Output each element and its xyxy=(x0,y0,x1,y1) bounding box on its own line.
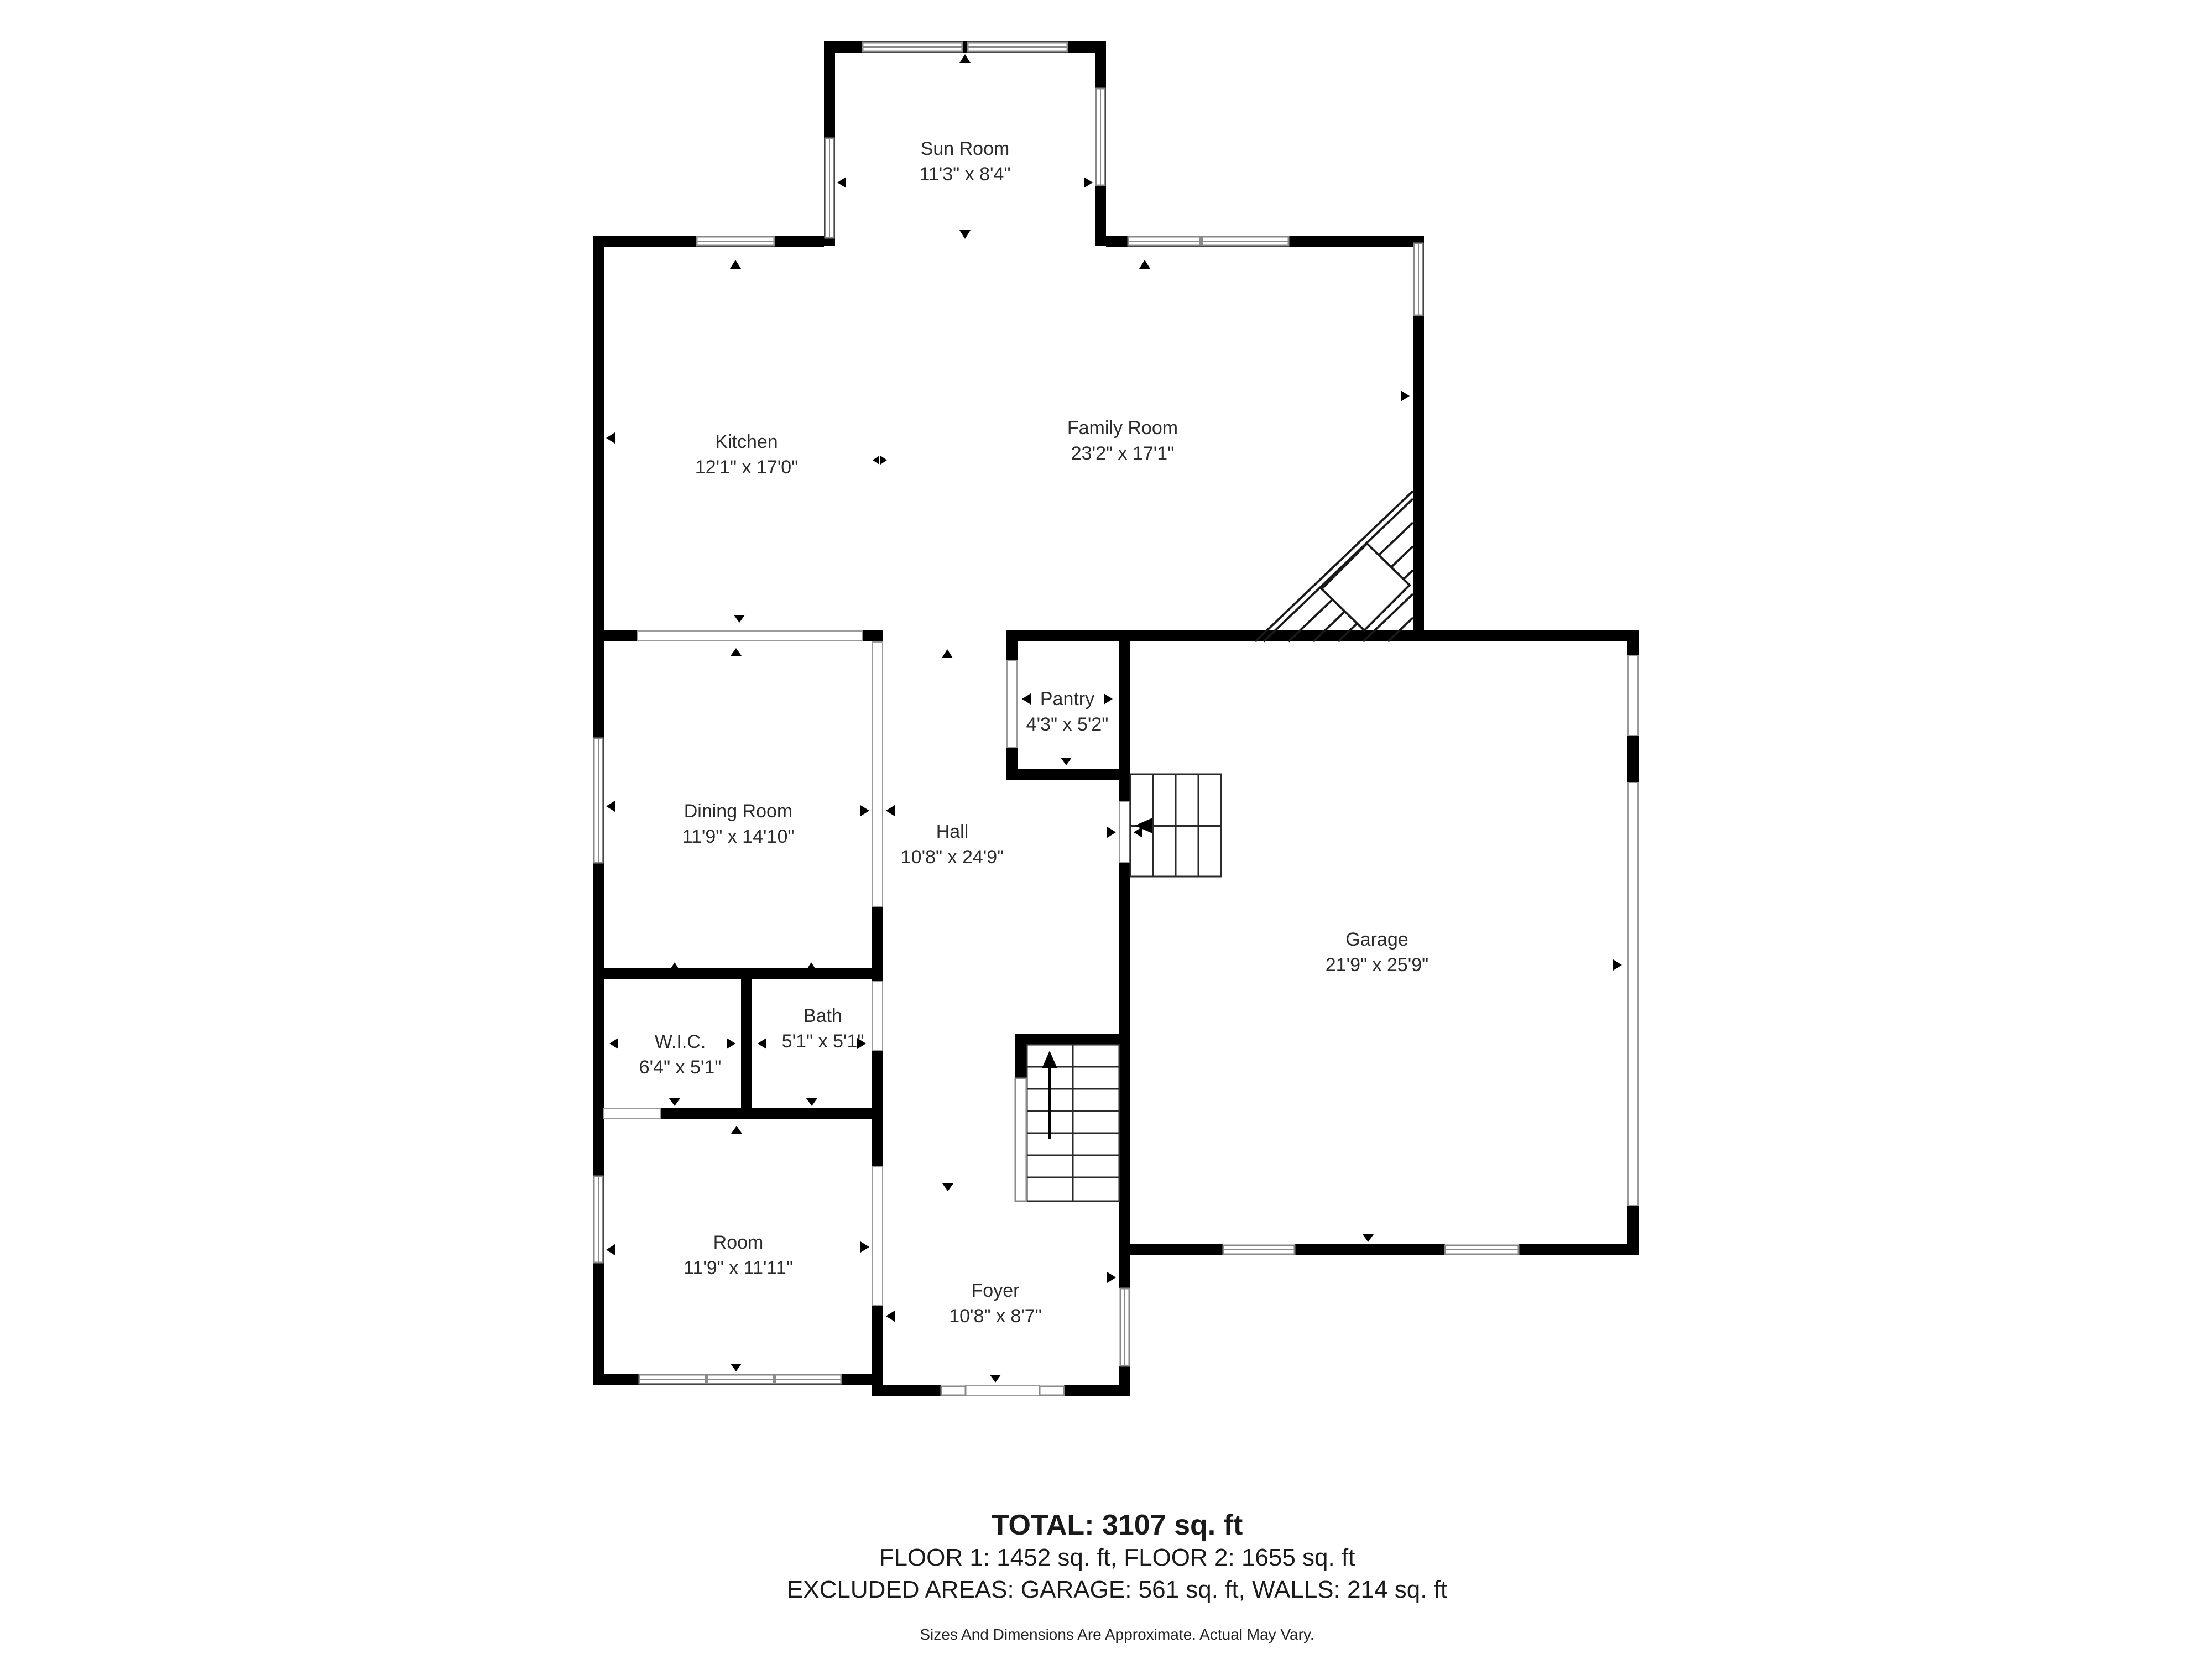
room-name: Pantry xyxy=(1026,687,1109,712)
staircase-main xyxy=(1015,1045,1119,1201)
floor-plan-page: Sun Room 11'3" x 8'4" Kitchen 12'1" x 17… xyxy=(0,0,2212,1659)
room-label-room: Room 11'9" x 11'11" xyxy=(684,1230,793,1281)
wall xyxy=(741,979,752,1119)
disclaimer-text: Sizes And Dimensions Are Approximate. Ac… xyxy=(920,1626,1314,1644)
garage-steps xyxy=(1130,774,1221,877)
wall xyxy=(1006,769,1130,780)
room-dimensions: 6'4" x 5'1" xyxy=(639,1055,722,1081)
room-name: Foyer xyxy=(949,1279,1042,1304)
room-label-family-room: Family Room 23'2" x 17'1" xyxy=(1067,416,1178,467)
wall xyxy=(1130,630,1639,641)
room-label-wic: W.I.C. 6'4" x 5'1" xyxy=(639,1030,722,1081)
floor-areas-text: FLOOR 1: 1452 sq. ft, FLOOR 2: 1655 sq. … xyxy=(879,1544,1355,1572)
door-wic-room xyxy=(604,1109,661,1119)
room-name: Bath xyxy=(782,1004,864,1029)
room-dimensions: 12'1" x 17'0" xyxy=(695,455,798,481)
room-label-bath: Bath 5'1" x 5'1" xyxy=(782,1004,864,1055)
winder-landing xyxy=(1322,544,1410,630)
room-name: W.I.C. xyxy=(639,1030,722,1055)
wall xyxy=(593,630,637,641)
wall xyxy=(1627,630,1639,655)
wall xyxy=(1519,1244,1639,1255)
wall xyxy=(1015,1034,1119,1045)
room-dimensions: 10'8" x 8'7" xyxy=(949,1304,1042,1329)
room-name: Hall xyxy=(901,820,1004,845)
room-name: Kitchen xyxy=(695,430,798,455)
room-name: Sun Room xyxy=(919,137,1010,162)
wall xyxy=(1627,735,1639,782)
door-bath-hall xyxy=(873,982,883,1051)
room-label-hall: Hall 10'8" x 24'9" xyxy=(901,820,1004,870)
wall xyxy=(1119,1244,1223,1255)
opening-kitchen-dining xyxy=(637,631,863,641)
total-area-text: TOTAL: 3107 sq. ft xyxy=(992,1509,1243,1542)
room-dimensions: 4'3" x 5'2" xyxy=(1026,712,1109,738)
room-label-foyer: Foyer 10'8" x 8'7" xyxy=(949,1279,1042,1329)
stair-railing xyxy=(1015,1078,1026,1201)
staircase-winder xyxy=(1255,491,1413,641)
room-name: Garage xyxy=(1326,927,1428,953)
room-dimensions: 11'3" x 8'4" xyxy=(919,162,1010,187)
room-name: Dining Room xyxy=(682,799,795,825)
room-dimensions: 5'1" x 5'1" xyxy=(782,1029,864,1055)
wall xyxy=(872,1385,941,1396)
wall xyxy=(872,630,883,641)
room-label-kitchen: Kitchen 12'1" x 17'0" xyxy=(695,430,798,481)
room-name: Family Room xyxy=(1067,416,1178,441)
window xyxy=(941,1386,966,1395)
door-room-hall xyxy=(873,1167,883,1305)
room-label-sun-room: Sun Room 11'3" x 8'4" xyxy=(919,137,1010,187)
opening-dining-hall xyxy=(873,642,883,907)
front-door-opening xyxy=(966,1386,1040,1396)
wall xyxy=(1006,641,1018,660)
wall xyxy=(1064,1385,1130,1396)
room-dimensions: 23'2" x 17'1" xyxy=(1067,441,1178,467)
room-label-pantry: Pantry 4'3" x 5'2" xyxy=(1026,687,1109,738)
opening-garage-right-upper xyxy=(1628,655,1638,735)
room-dimensions: 10'8" x 24'9" xyxy=(901,845,1004,870)
door-pantry xyxy=(1007,660,1017,748)
room-dimensions: 11'9" x 14'10" xyxy=(682,825,795,850)
wall xyxy=(661,1108,883,1119)
room-label-dining-room: Dining Room 11'9" x 14'10" xyxy=(682,799,795,850)
opening-garage-right-lower xyxy=(1628,782,1638,1206)
excluded-areas-text: EXCLUDED AREAS: GARAGE: 561 sq. ft, WALL… xyxy=(787,1576,1447,1604)
window xyxy=(1040,1386,1064,1395)
wall xyxy=(1015,1045,1026,1078)
room-dimensions: 11'9" x 11'11" xyxy=(684,1256,793,1281)
door-hall-garage-steps xyxy=(1120,802,1130,863)
room-label-garage: Garage 21'9" x 25'9" xyxy=(1326,927,1428,978)
floor-plan-drawing xyxy=(0,0,2212,1659)
wall xyxy=(1006,630,1130,641)
wall xyxy=(1119,863,1130,1288)
wall xyxy=(593,968,883,979)
room-dimensions: 21'9" x 25'9" xyxy=(1326,953,1428,978)
wall xyxy=(1295,1244,1445,1255)
room-name: Room xyxy=(684,1230,793,1256)
